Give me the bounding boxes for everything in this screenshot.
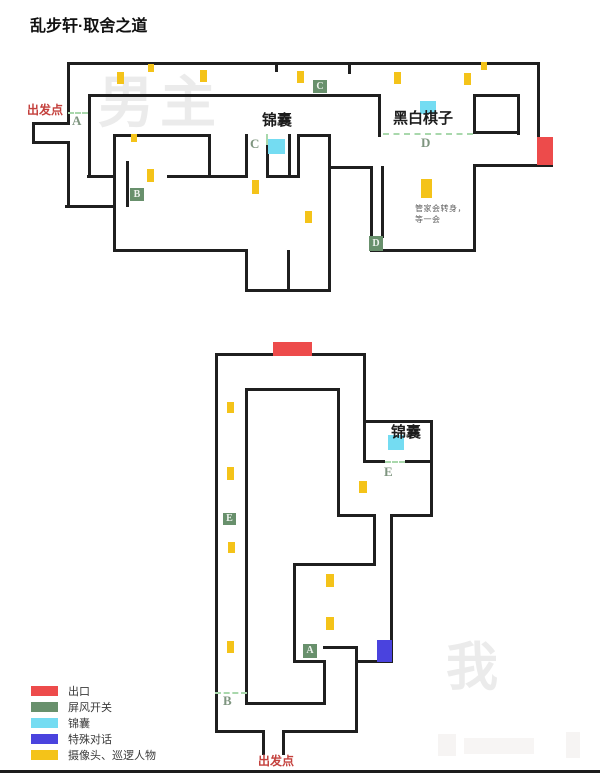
guide-image: 乱步轩·取舍之道 男主CBD出发点A锦囊C黑白棋子D管家会转身，等一会我EA锦囊… <box>0 0 600 776</box>
legend-label: 摄像头、巡逻人物 <box>68 747 156 763</box>
legend-row-dialog: 特殊对话 <box>31 731 112 747</box>
screen-swatch <box>31 702 58 712</box>
legend-label: 屏风开关 <box>68 699 112 715</box>
legend: 出口屏风开关锦囊特殊对话摄像头、巡逻人物 <box>0 0 600 776</box>
legend-label: 特殊对话 <box>68 731 112 747</box>
legend-row-screen: 屏风开关 <box>31 699 112 715</box>
legend-row-exit: 出口 <box>31 683 90 699</box>
legend-label: 出口 <box>68 683 90 699</box>
legend-row-bag: 锦囊 <box>31 715 90 731</box>
exit-swatch <box>31 686 58 696</box>
patrol-swatch <box>31 750 58 760</box>
dialog-swatch <box>31 734 58 744</box>
bottom-border-line <box>0 770 600 773</box>
faint-watermark <box>438 730 588 762</box>
bag-swatch <box>31 718 58 728</box>
legend-label: 锦囊 <box>68 715 90 731</box>
legend-row-patrol: 摄像头、巡逻人物 <box>31 747 156 763</box>
